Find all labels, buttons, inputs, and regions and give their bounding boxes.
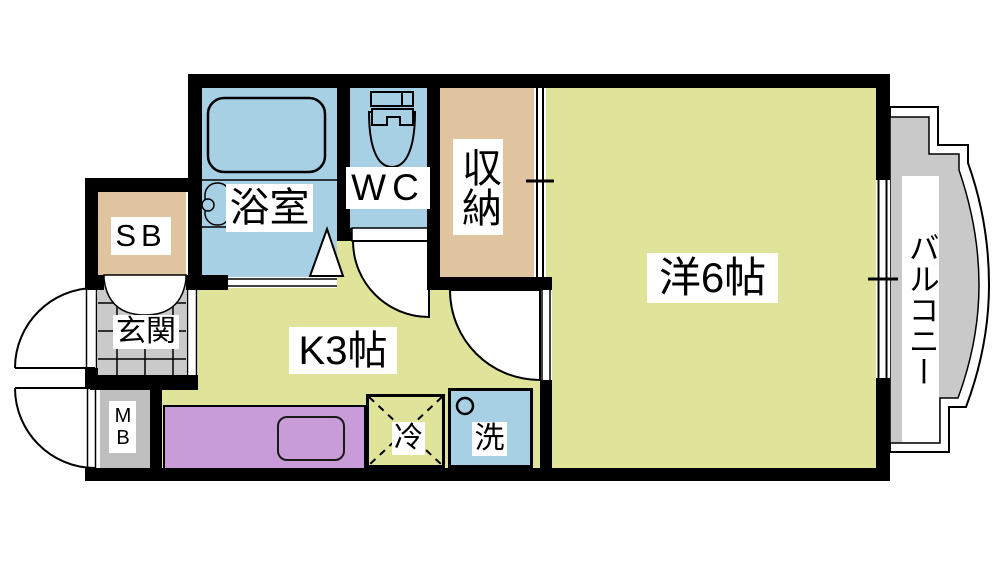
wall-top (188, 74, 890, 88)
wall-right-upper (876, 74, 890, 178)
wall-meterbox-right (150, 378, 162, 468)
wall-bathroom-bottom (186, 275, 228, 290)
entrance-door-icon (15, 288, 98, 368)
wall-wc-left (337, 74, 350, 241)
wall-right-lower (876, 380, 890, 481)
bathroom-label: 浴室 (226, 184, 313, 232)
wall-below-storage (427, 277, 552, 290)
meter-box-door-icon (15, 388, 98, 468)
wall-shoebox-bottom-left (85, 275, 104, 290)
wall-entrance-bottom (90, 375, 198, 390)
wc-label: WC (346, 167, 430, 209)
western-room-label: 洋6帖 (647, 253, 778, 303)
floor-plan: 浴室 WC 収納 洋6帖 K3帖 バルコニー 玄関 SB MB 冷 洗 (0, 0, 1000, 562)
washer-faucet-icon (457, 398, 473, 414)
wc-door-icon (352, 228, 430, 317)
wall-shoebox-left (85, 178, 98, 278)
toilet-icon (369, 92, 415, 167)
wall-bottom (85, 468, 890, 481)
refrigerator-label: 冷 (392, 422, 425, 455)
bathtub-icon (208, 98, 325, 172)
entrance-label: 玄関 (113, 315, 179, 349)
kitchen-label: K3帖 (289, 327, 397, 374)
western-room-door-icon (450, 290, 552, 380)
balcony-label: バルコニー (902, 176, 939, 442)
wall-shoebox-top (85, 178, 202, 192)
wall-wc-door-stub (337, 228, 352, 241)
entrance-step-icon (186, 290, 198, 375)
bathroom-door-track-icon (226, 277, 337, 288)
washer-label: 洗 (472, 422, 507, 456)
meter-box-label: MB (109, 401, 136, 453)
storage-sliding-door-icon (526, 88, 554, 277)
wall-kitchen-west-room (540, 380, 552, 468)
shoe-box-label: SB (111, 217, 171, 255)
storage-label: 収納 (453, 139, 503, 235)
